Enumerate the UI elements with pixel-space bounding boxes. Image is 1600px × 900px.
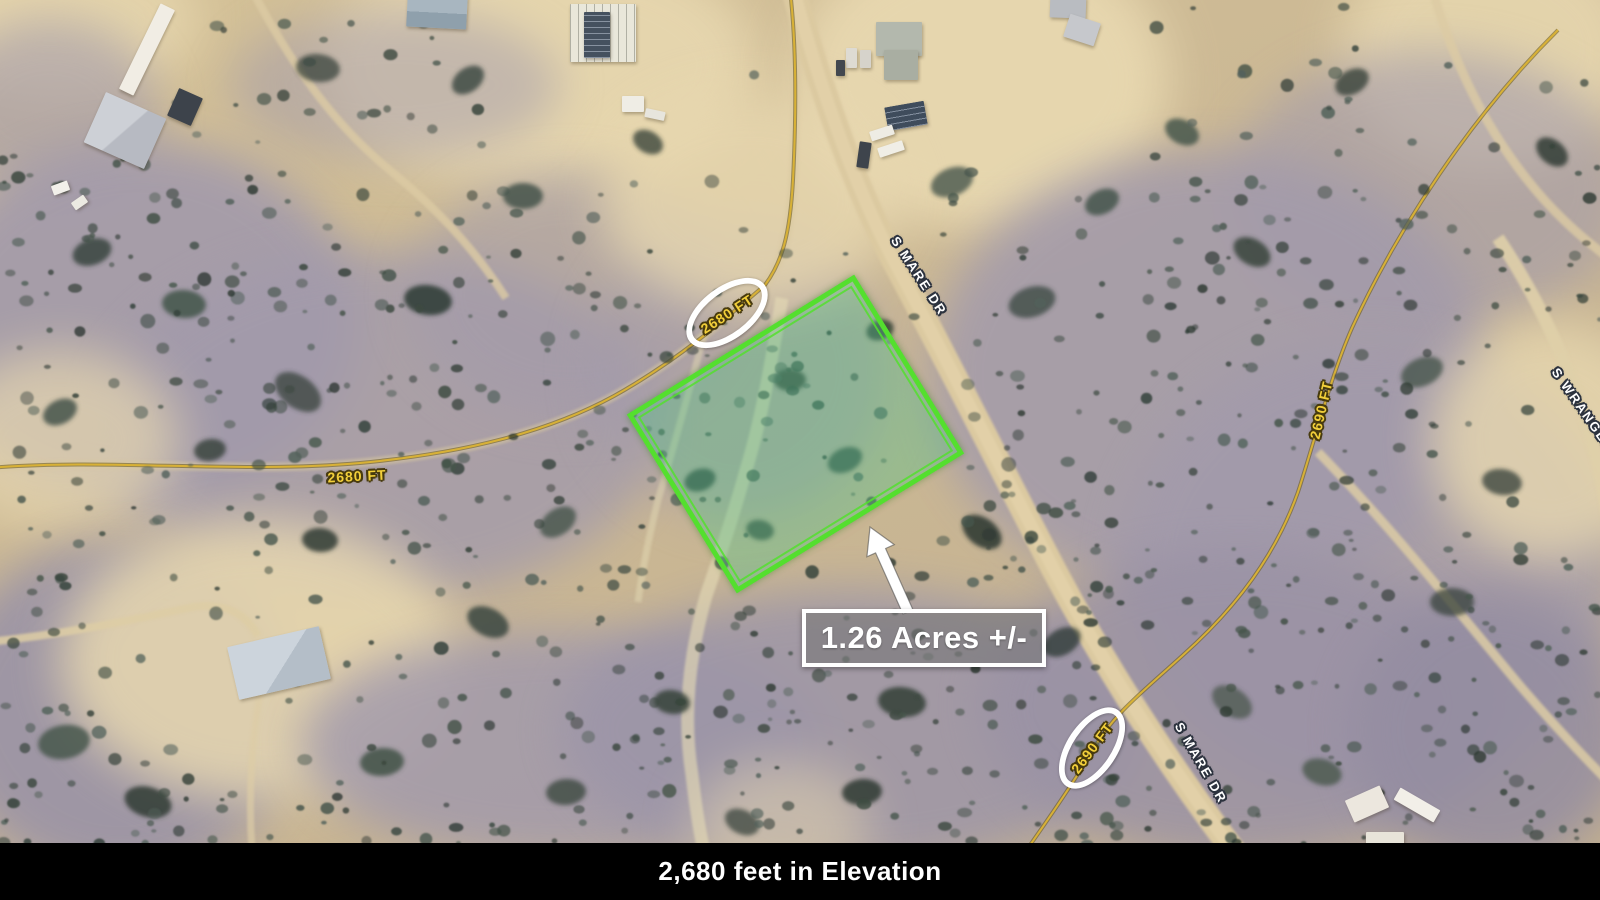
vehicle: [877, 140, 905, 158]
contour-label-2680-west: 2680 FT: [327, 466, 387, 485]
elevation-banner: 2,680 feet in Elevation: [0, 843, 1600, 900]
land-listing-map: 2680 FT 2690 FT 2680 FT 2690 FT S MARE D…: [0, 0, 1600, 900]
building: [1394, 787, 1441, 822]
solar-panels: [584, 12, 610, 58]
building: [167, 88, 203, 126]
vehicle: [644, 108, 665, 121]
building: [1050, 0, 1087, 19]
building: [84, 92, 167, 169]
vehicle: [71, 195, 88, 211]
vehicle: [856, 141, 872, 168]
elevation-banner-text: 2,680 feet in Elevation: [658, 856, 941, 887]
building: [1063, 14, 1101, 47]
vehicle: [846, 48, 857, 68]
vehicle: [51, 180, 70, 195]
building: [406, 0, 468, 30]
acreage-callout-box: 1.26 Acres +/-: [802, 609, 1046, 667]
acreage-callout-text: 1.26 Acres +/-: [821, 620, 1028, 656]
building: [227, 626, 331, 700]
vehicle: [869, 125, 895, 142]
building: [622, 96, 644, 112]
vehicle: [860, 50, 871, 68]
building: [884, 50, 918, 80]
building: [119, 3, 175, 95]
vehicle: [836, 60, 845, 76]
building: [1345, 785, 1389, 822]
